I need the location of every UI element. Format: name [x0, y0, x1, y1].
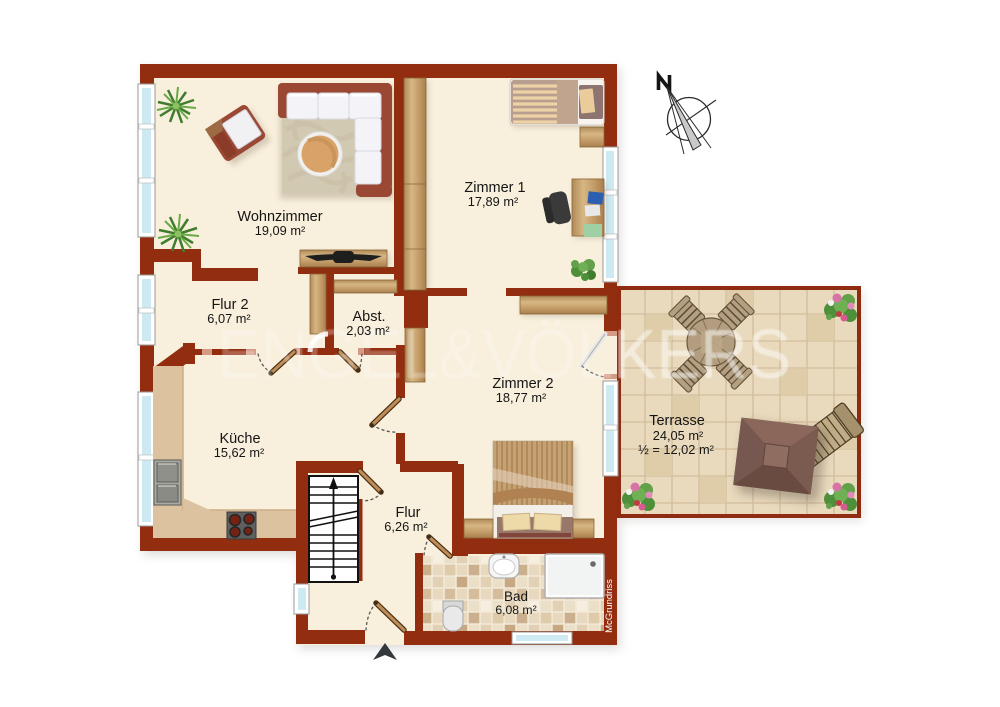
svg-text:McGrundriss: McGrundriss [604, 579, 615, 633]
svg-text:6,26 m²: 6,26 m² [384, 519, 428, 534]
svg-text:Bad: Bad [504, 589, 528, 604]
svg-text:6,07 m²: 6,07 m² [207, 311, 251, 326]
svg-text:Terrasse: Terrasse [649, 413, 705, 429]
svg-text:15,62 m²: 15,62 m² [214, 445, 265, 460]
svg-text:½ = 12,02 m²: ½ = 12,02 m² [638, 442, 714, 457]
svg-text:2,03 m²: 2,03 m² [346, 323, 390, 338]
svg-text:6,08 m²: 6,08 m² [495, 603, 536, 617]
svg-text:17,89 m²: 17,89 m² [468, 194, 519, 209]
svg-text:19,09 m²: 19,09 m² [255, 223, 306, 238]
svg-text:24,05 m²: 24,05 m² [653, 428, 704, 443]
svg-text:18,77 m²: 18,77 m² [496, 390, 547, 405]
